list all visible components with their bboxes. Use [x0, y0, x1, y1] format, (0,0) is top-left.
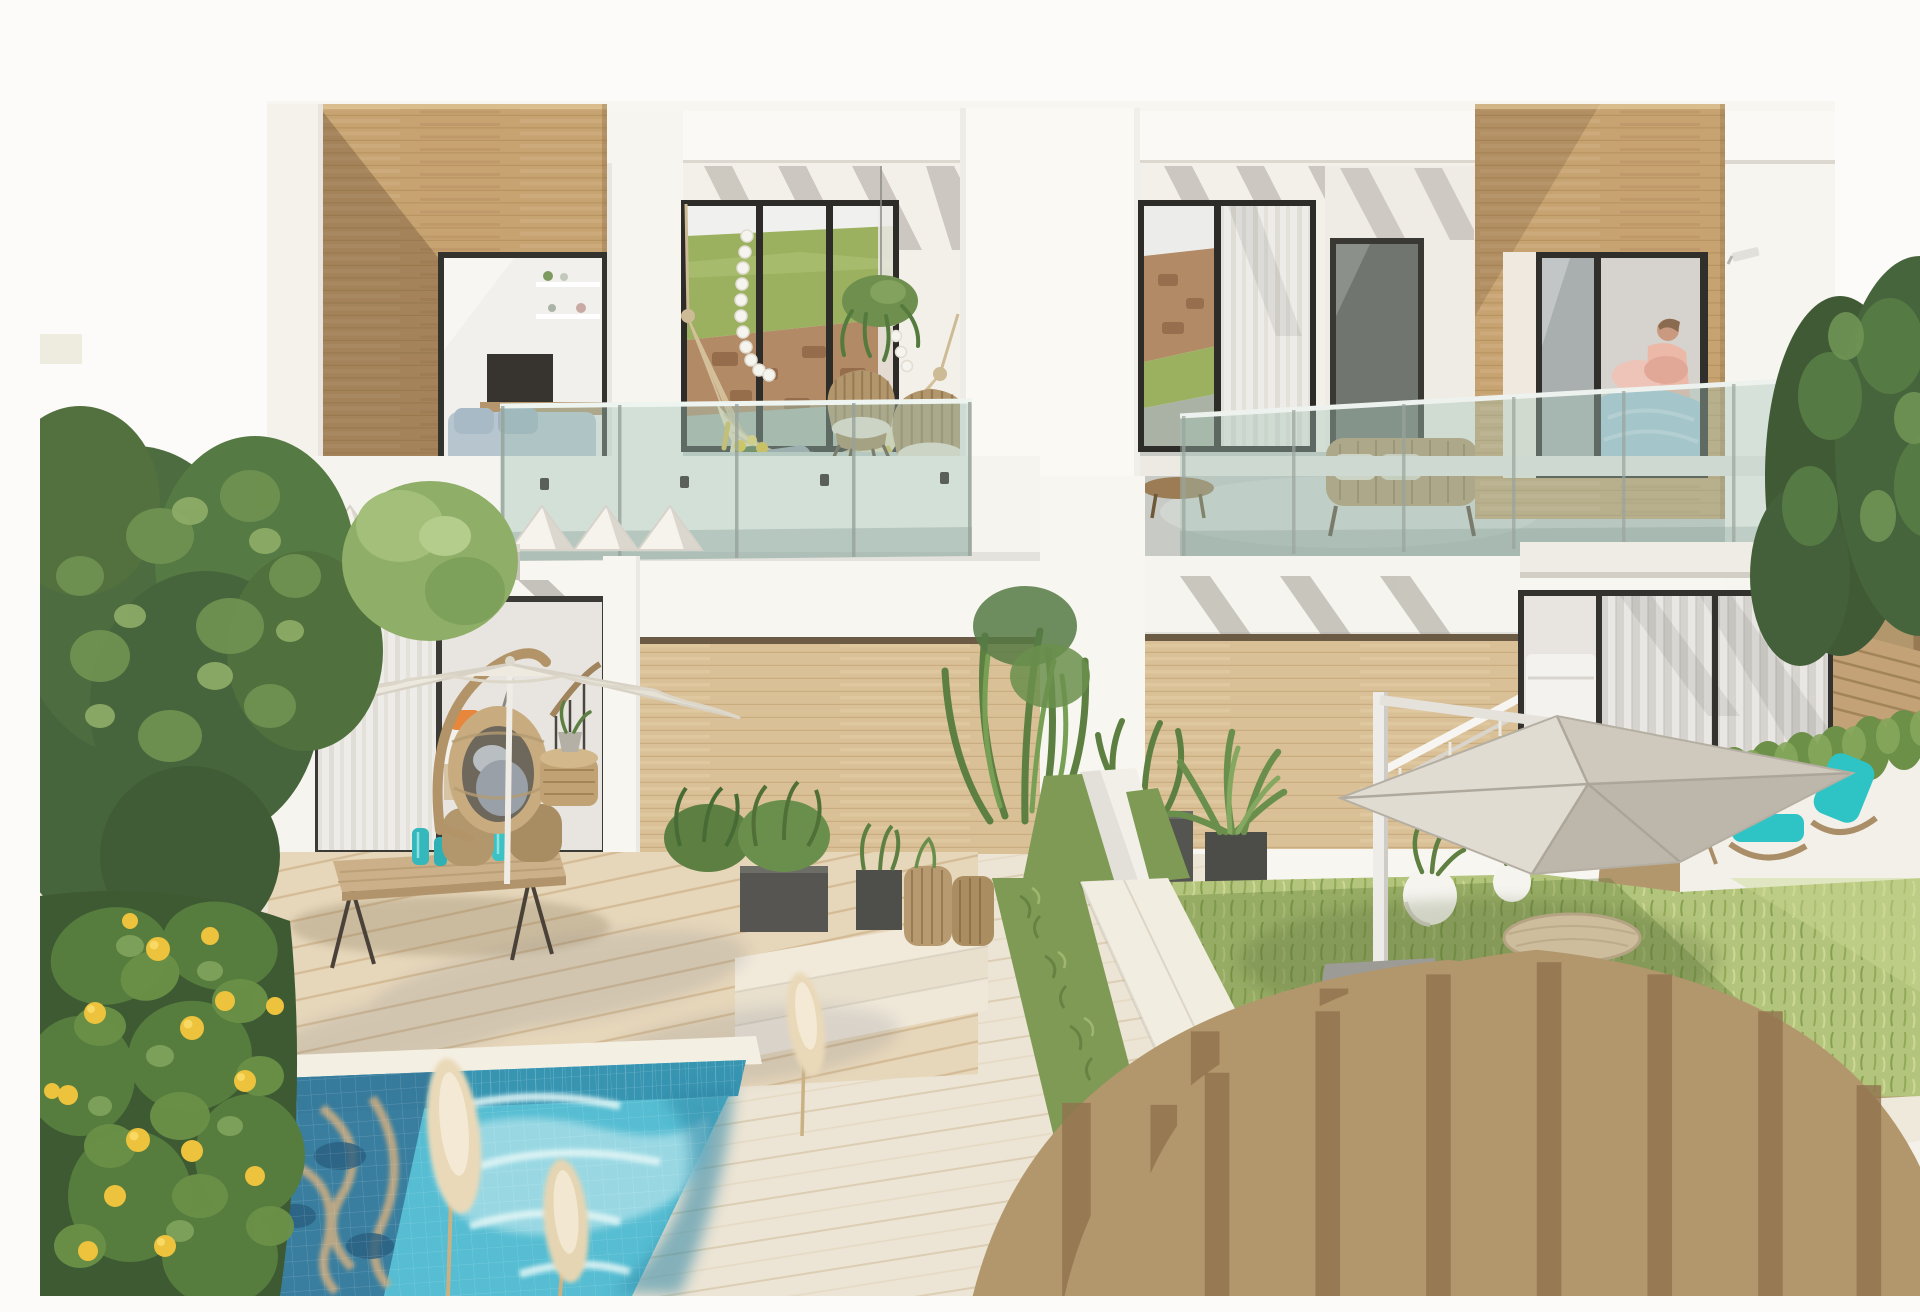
glass-balustrade-left — [500, 401, 972, 561]
light-tree-crown — [342, 481, 518, 641]
left-boundary-wall — [40, 334, 82, 364]
left-wall-pillar — [267, 104, 323, 466]
tv-screen — [487, 354, 553, 403]
lemon-tree — [40, 891, 305, 1296]
villa-exterior-rendering — [40, 16, 1920, 1296]
central-pillar — [960, 108, 1140, 476]
